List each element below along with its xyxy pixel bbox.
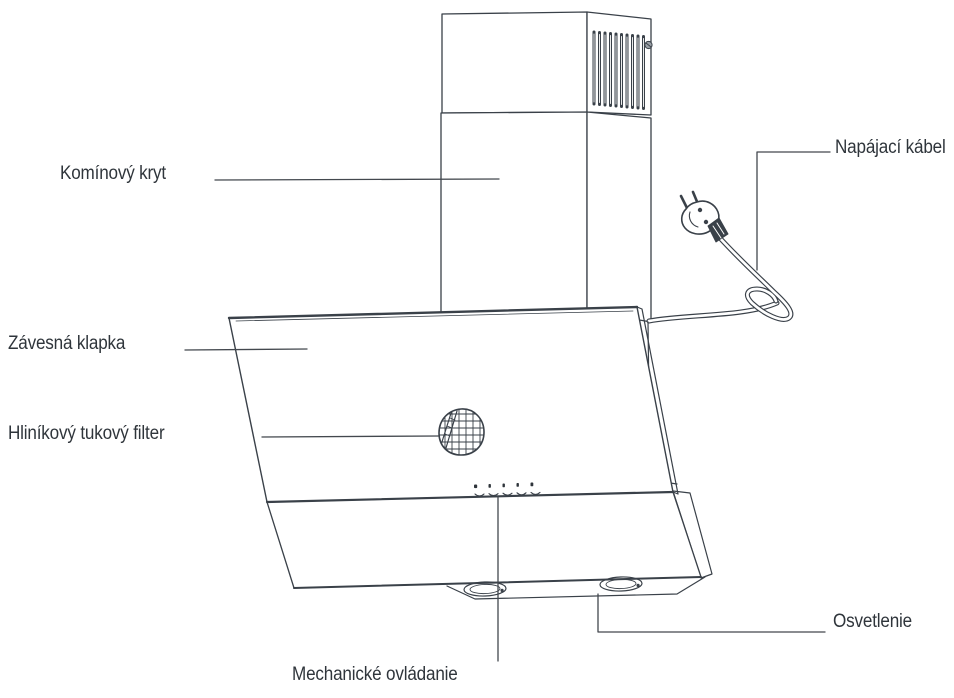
chimney-lower-side-face <box>587 112 651 322</box>
control-mark <box>503 484 505 488</box>
grille-screw-icon <box>645 41 652 48</box>
chimney-upper-side-face <box>587 12 651 115</box>
hood-lower-body <box>267 492 705 599</box>
power-plug-icon <box>681 192 728 242</box>
leader-lighting <box>598 594 825 632</box>
cooker-hood-illustration <box>0 0 954 698</box>
control-mark <box>517 483 519 487</box>
label-lighting: Osvetlenie <box>833 612 912 633</box>
label-flap: Závesná klapka <box>8 334 125 355</box>
chimney-lower-front-face <box>441 112 587 313</box>
leader-power-cable <box>757 152 830 270</box>
power-cable <box>649 237 791 321</box>
diagram-canvas: Komínový kryt Napájací kábel Závesná kla… <box>0 0 954 698</box>
chimney-lower-section <box>441 112 651 322</box>
label-controls: Mechanické ovládanie <box>292 665 458 686</box>
label-power-cable: Napájací kábel <box>835 138 946 159</box>
control-mark <box>474 485 477 489</box>
control-mark <box>489 484 491 488</box>
control-mark <box>531 483 534 487</box>
hood-front-panel <box>267 492 701 588</box>
chimney-upper-section <box>442 12 651 115</box>
chimney-upper-front-face <box>442 12 587 113</box>
label-chimney: Komínový kryt <box>60 164 166 185</box>
label-filter: Hliníkový tukový filter <box>8 424 164 445</box>
glass-flap-panel <box>229 307 678 502</box>
